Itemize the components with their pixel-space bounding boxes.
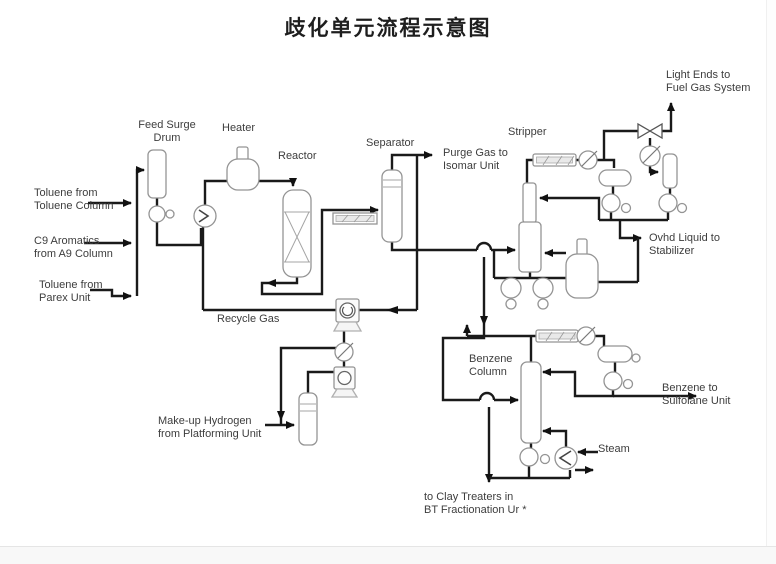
benzene-trim-cooler xyxy=(577,327,595,345)
stripper-overhead-drum xyxy=(599,170,631,186)
arrow-left-icon xyxy=(386,306,398,314)
combined-feed-exchanger xyxy=(194,205,216,227)
label-purge-gas: Purge Gas to Isomar Unit xyxy=(443,147,508,173)
label-reactor: Reactor xyxy=(278,150,317,163)
stripper-reflux-pump xyxy=(602,194,631,213)
heater xyxy=(227,147,259,190)
separator xyxy=(382,170,402,242)
stripper-column xyxy=(519,183,541,272)
label-toluene-from-toluene-column: Toluene from Toluene Column xyxy=(34,187,114,213)
benzene-reflux-pump xyxy=(604,372,633,390)
feed-surge-drum xyxy=(148,150,166,198)
page-edge-right xyxy=(766,0,776,546)
process-flow-diagram: 歧化单元流程示意图 xyxy=(0,0,776,564)
purge-gas-line xyxy=(392,155,432,170)
label-toluene-from-parex: Toluene from Parex Unit xyxy=(39,279,103,305)
feed-pump xyxy=(149,206,174,222)
feed-header-line xyxy=(137,170,144,296)
ovhd-liquid-line xyxy=(620,220,641,238)
overhead-product-pump xyxy=(659,194,687,213)
stripper-trim-cooler xyxy=(579,151,597,169)
heater-outlet-line xyxy=(256,181,293,186)
label-feed-surge-drum: Feed Surge Drum xyxy=(132,119,202,145)
reactor xyxy=(283,190,311,277)
makeup-gas-exchanger xyxy=(335,343,353,361)
label-benzene-to-sulfolane: Benzene to Sulfolane Unit xyxy=(662,382,731,408)
light-ends-vessel xyxy=(663,154,677,188)
steam-return-line xyxy=(543,431,566,447)
label-makeup-hydrogen: Make-up Hydrogen from Platforming Unit xyxy=(158,415,261,441)
label-stripper: Stripper xyxy=(508,126,547,139)
diagram-canvas xyxy=(0,0,776,564)
light-ends-valve xyxy=(638,124,662,138)
light-ends-line xyxy=(662,103,671,131)
stripper-reboiler xyxy=(566,239,598,298)
page-edge-bottom xyxy=(0,546,776,564)
stripper-bottoms-pumps xyxy=(501,278,553,309)
makeup-compressor xyxy=(332,367,357,397)
light-ends-cooler xyxy=(640,146,660,166)
label-heater: Heater xyxy=(222,122,255,135)
recycle-compressor xyxy=(334,299,361,331)
label-clay-treaters: to Clay Treaters in BT Fractionation Ur … xyxy=(424,491,527,517)
label-light-ends: Light Ends to Fuel Gas System xyxy=(666,69,750,95)
stripper-condenser xyxy=(533,154,576,166)
arrow-left-icon xyxy=(266,279,276,287)
line-hop xyxy=(477,243,491,250)
label-benzene-column: Benzene Column xyxy=(469,353,512,379)
benzene-condenser xyxy=(536,330,578,342)
benzene-steam-reboiler xyxy=(555,447,577,469)
label-c9-aromatics: C9 Aromatics from A9 Column xyxy=(34,235,113,261)
benzene-column-vessel xyxy=(521,362,541,443)
line-hop xyxy=(480,393,494,400)
label-recycle-gas: Recycle Gas xyxy=(217,313,279,326)
label-separator: Separator xyxy=(366,137,414,150)
makeup-hydrogen-drum xyxy=(299,393,317,445)
arrow-down-icon xyxy=(480,316,488,326)
benzene-bottoms-pump xyxy=(520,448,550,466)
effluent-exchanger xyxy=(333,213,377,224)
label-steam: Steam xyxy=(598,443,630,456)
benzene-reflux-line xyxy=(543,372,613,396)
arrow-down-icon xyxy=(277,411,285,421)
stripper-reflux-line xyxy=(540,198,599,220)
benzene-overhead-drum xyxy=(598,346,640,362)
label-ovhd-liquid: Ovhd Liquid to Stabilizer xyxy=(649,232,720,258)
